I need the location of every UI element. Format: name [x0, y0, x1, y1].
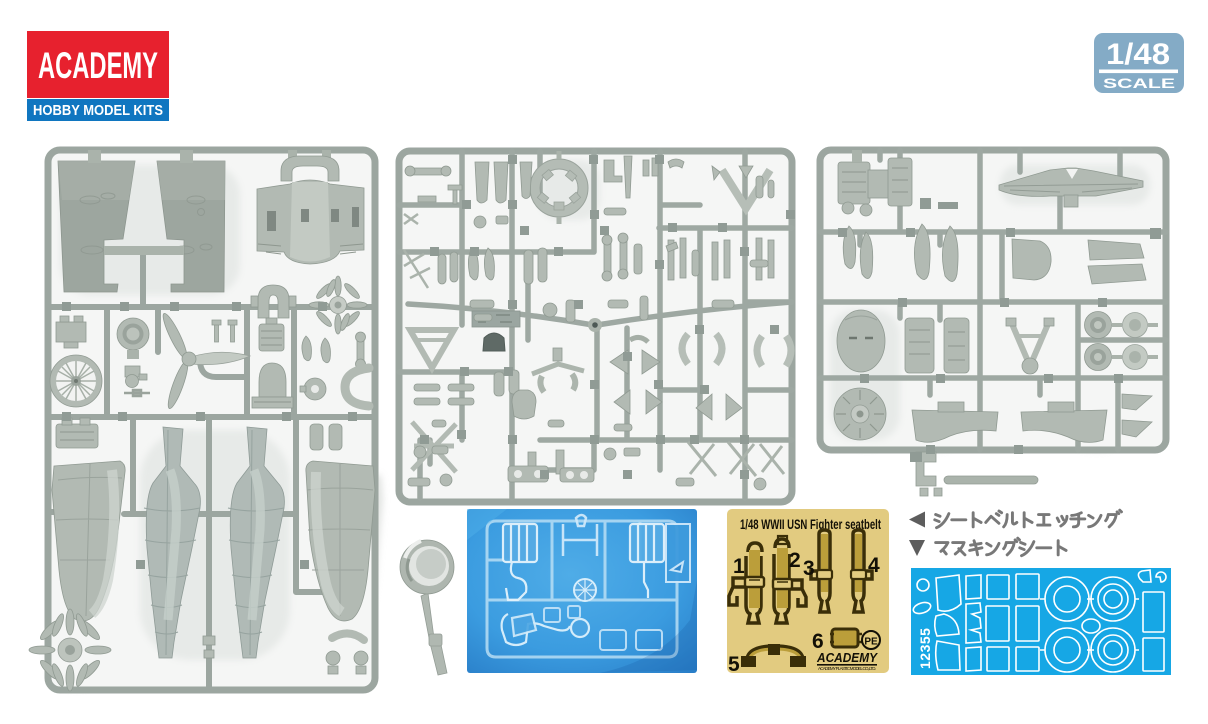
svg-text:12355: 12355: [917, 628, 933, 669]
svg-text:HOBBY MODEL KITS: HOBBY MODEL KITS: [33, 103, 163, 119]
svg-text:ACADEMY: ACADEMY: [816, 650, 878, 665]
svg-text:SCALE: SCALE: [1103, 75, 1175, 91]
svg-text:ACADEMY PLASTIC MODEL CO.,LTD.: ACADEMY PLASTIC MODEL CO.,LTD.: [818, 666, 876, 671]
svg-text:3: 3: [803, 557, 815, 580]
svg-text:4: 4: [868, 554, 880, 577]
svg-text:5: 5: [728, 653, 740, 676]
svg-text:PE: PE: [864, 637, 878, 648]
svg-text:1/48: 1/48: [1106, 38, 1170, 71]
svg-text:1: 1: [733, 555, 745, 578]
svg-text:ACADEMY: ACADEMY: [38, 45, 158, 86]
svg-text:2: 2: [789, 549, 801, 572]
